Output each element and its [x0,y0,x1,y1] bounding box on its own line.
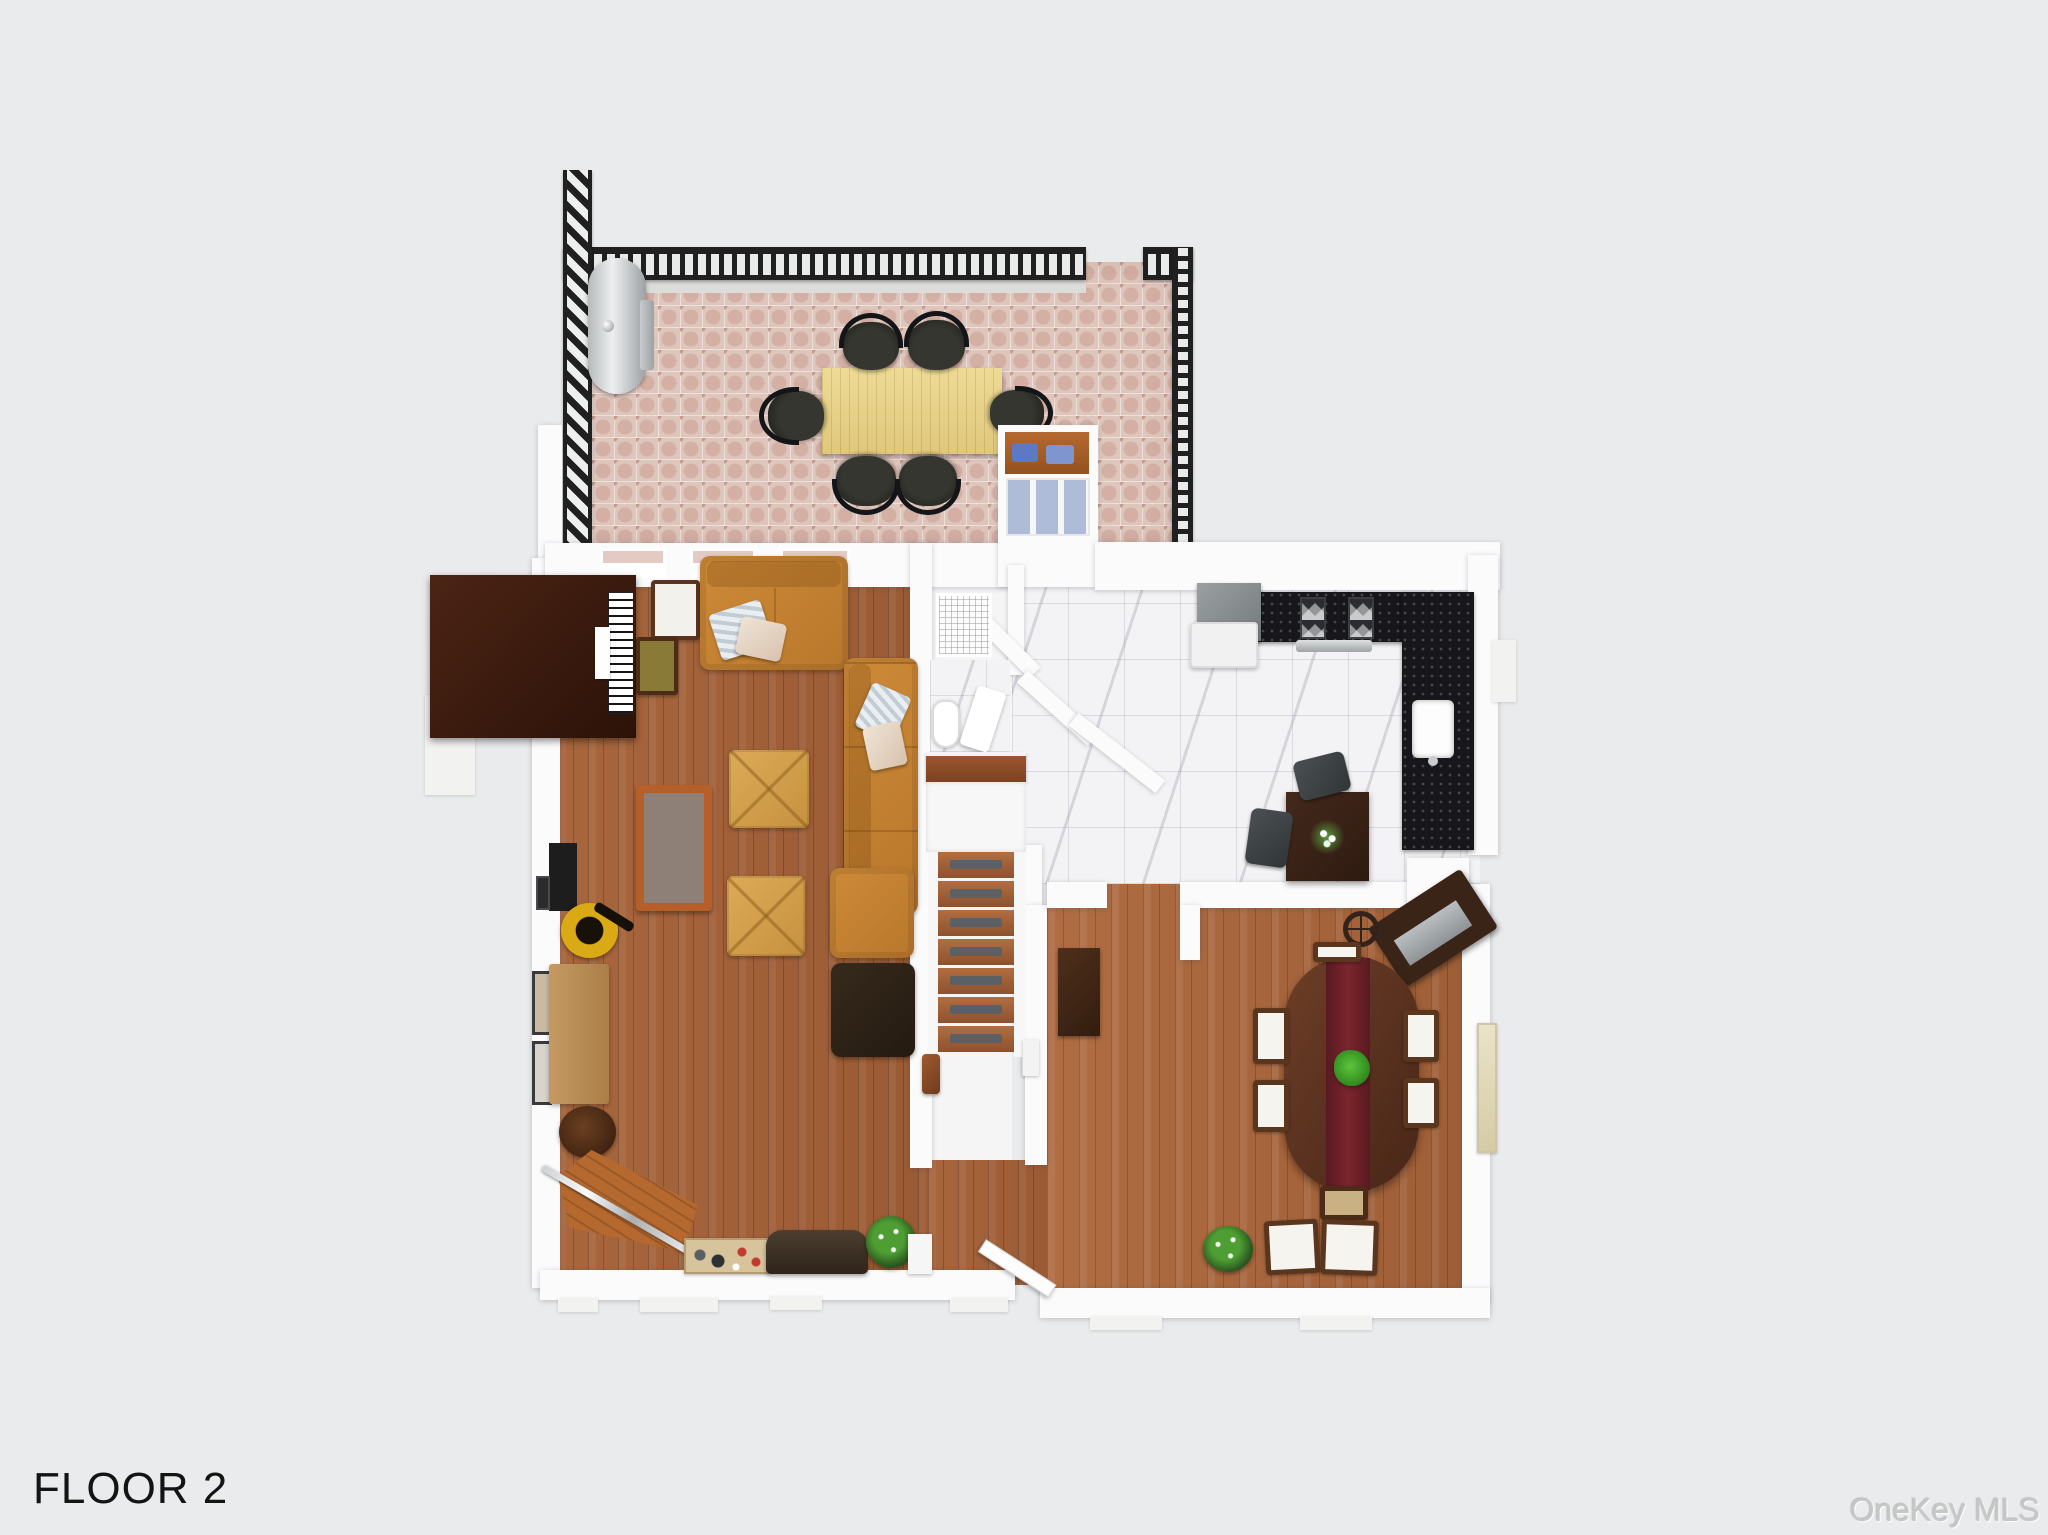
kitchen-faucet [1428,756,1438,766]
side-table [636,637,678,695]
console-bench [549,964,609,1104]
staircase [928,852,1026,1057]
deck-dining-table [822,368,1002,454]
dishwasher [1190,622,1258,668]
wall-stub [1180,905,1200,960]
floor-label: FLOOR 2 [33,1464,228,1514]
piano-keyboard [608,592,634,714]
stair-bottom-post [1023,1040,1039,1076]
toilet [932,700,960,748]
kitchen-dining-wall-a [1047,882,1107,908]
stair-newel-post [922,1054,940,1094]
dining-chair [1264,1219,1321,1276]
stair-side-cabinet [1058,948,1100,1036]
structural-column [908,1234,932,1274]
wall-art [1477,1023,1497,1153]
stair-step [938,1026,1014,1052]
kitchen-chair [1244,807,1293,868]
dining-left-wall [1025,905,1047,1165]
grill [588,258,646,394]
dining-chair [1403,1010,1439,1062]
deck-chair [768,391,824,441]
deck-railing-right [1172,247,1193,547]
dining-chair [1253,1008,1289,1064]
deck-chair [836,456,896,506]
shower-pan [936,593,992,657]
wall-frame [536,876,550,910]
breakfast-table-flowers [1310,820,1344,854]
window-sill-tab [558,1298,598,1312]
window [600,548,666,578]
dining-chair [1313,942,1361,962]
cooktop-grate [1300,597,1326,639]
fireplace-niche [549,843,577,911]
dining-chair [1320,1219,1379,1276]
table-centerpiece-plant [1334,1050,1370,1086]
window-sill-tab [950,1298,1008,1312]
stair-landing [926,782,1026,852]
coffee-table [636,785,712,911]
bench-cushion-blue [1046,445,1074,464]
stair-step [938,939,1014,965]
deck-chair [843,322,899,370]
low-dresser [766,1230,868,1274]
dining-chair [1253,1080,1289,1132]
activity-panel [684,1238,770,1274]
stair-step [938,968,1014,994]
deck-chair [908,320,965,370]
cooktop-grate [1348,597,1374,639]
armchair [830,868,914,958]
floorplan-canvas: FLOOR 2 OneKey MLS [0,0,2048,1535]
deck-chair [899,456,957,506]
ottoman [729,750,809,828]
watermark: OneKey MLS [1850,1492,2040,1529]
dining-chair [1403,1078,1439,1128]
window-sill-tab [1090,1316,1162,1330]
kitchen-sink [1412,700,1454,758]
bay-window-panes [1006,478,1090,536]
stair-step [938,881,1014,907]
west-wall-upper [538,425,562,560]
round-stool [559,1106,616,1158]
deck-concrete-strip [570,280,1086,293]
kitchen-right-window-tab [1492,640,1516,702]
kitchen-top-wall [1095,542,1500,590]
window-sill-tab [770,1296,822,1310]
stair-rail-band [926,752,1026,782]
piano-bench [651,580,700,640]
window-sill-tab [1300,1316,1372,1330]
ottoman [727,876,805,956]
armchair-dark [831,963,915,1057]
stair-step [938,910,1014,936]
stair-step [938,997,1014,1023]
oven-vent-strip [1296,640,1372,652]
grill-shelf [640,300,654,370]
kitchen-dining-wall-b [1180,882,1415,908]
stair-step [938,852,1014,878]
bench-cushion-blue [1012,443,1038,462]
window-sill-tab [640,1298,718,1312]
potted-plant [1203,1226,1253,1272]
dining-chair-tan [1320,1186,1368,1220]
dining-bottom-wall [1040,1288,1490,1318]
piano-sheet-music [595,627,610,679]
